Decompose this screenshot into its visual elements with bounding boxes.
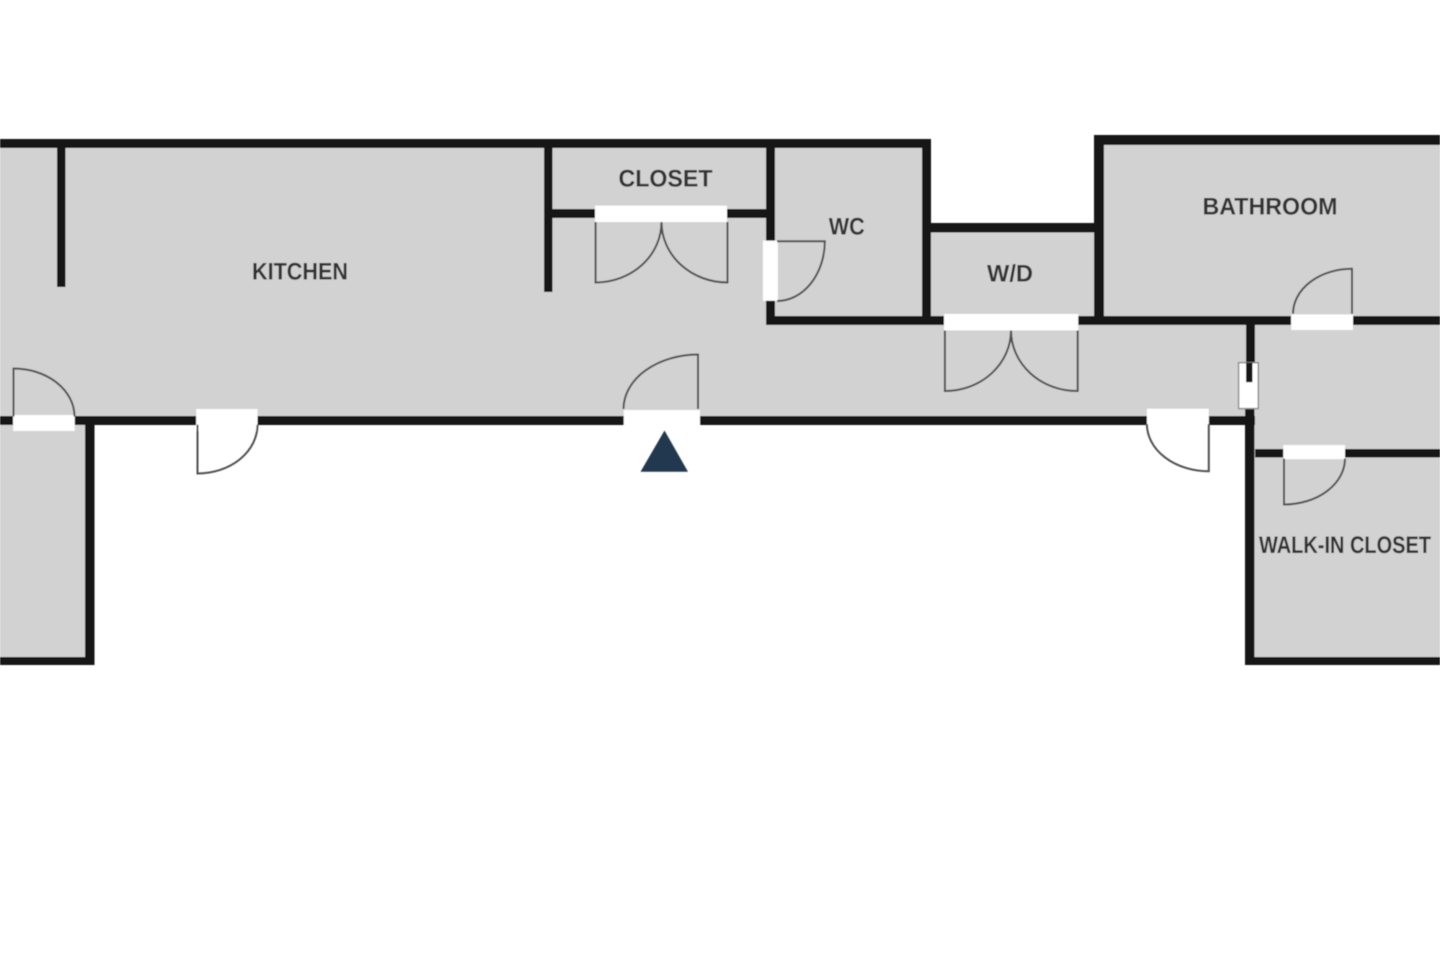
svg-text:KITCHEN: KITCHEN bbox=[252, 259, 348, 286]
svg-text:WALK-IN CLOSET: WALK-IN CLOSET bbox=[1259, 532, 1431, 559]
svg-text:WC: WC bbox=[829, 214, 865, 241]
svg-text:BATHROOM: BATHROOM bbox=[1203, 194, 1338, 221]
svg-text:CLOSET: CLOSET bbox=[619, 165, 713, 192]
svg-text:W/D: W/D bbox=[987, 261, 1033, 288]
